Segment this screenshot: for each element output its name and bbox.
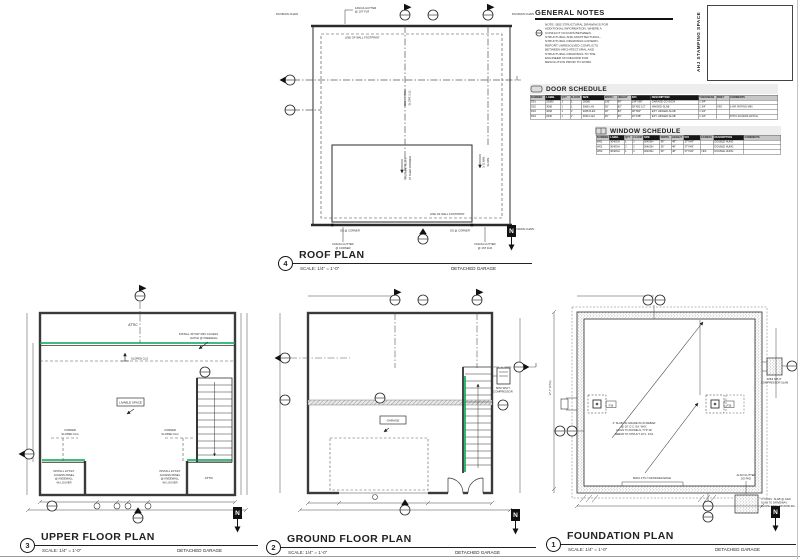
- overhead-door-track: [330, 438, 428, 490]
- building-label: DETACHED GARAGE: [451, 266, 496, 271]
- fascia-gutter-label: FASCIA GUTTER: [355, 6, 376, 10]
- title-underline: [561, 544, 796, 546]
- door-schedule-table: NUMBERLABELQTYFLOORSIZEWIDTHHEIGHTR/ODES…: [530, 95, 778, 119]
- plan-title: UPPER FLOOR PLAN: [41, 531, 155, 543]
- title-underline: [293, 263, 532, 265]
- mini-split-label: MINI SPLIT: [496, 386, 510, 390]
- mini-split-pad-label: MINI SPLIT: [768, 377, 782, 381]
- foundation-plan-drawing: 4" SLAB ON GRADE W/ #4 REBAR @ 16" O.C. …: [548, 288, 800, 530]
- garage-door-opening: [339, 478, 483, 493]
- plan-number-bubble: 4: [278, 256, 293, 271]
- foundation-hatch-ticks: [580, 495, 716, 502]
- attic-label: ATTIC: [205, 476, 214, 480]
- plan-number: 3: [25, 541, 29, 550]
- title-underline: [281, 547, 536, 549]
- access-panel-note: INSTALL 24"X24": [159, 469, 180, 473]
- ftg-edge-label: BLDG FTG THICKENED EDGE: [633, 476, 671, 480]
- sloped-clg-arrow: [121, 353, 129, 361]
- access-panel-note: @ KNEEWALL: [161, 477, 180, 481]
- fascia-gutter-label: @ 1ST FLR: [355, 10, 369, 14]
- roof-outline: [311, 26, 512, 225]
- pad-note: 4" CONC. SLAB @ GAR.: [761, 497, 792, 501]
- slope-note-center: AT SHED DORMER: [408, 156, 412, 180]
- livable-space-label: LIVABLE SPACE: [119, 401, 142, 405]
- sheet-edge-bottom: [0, 556, 800, 557]
- north-label: N: [511, 509, 520, 521]
- corner-sloped-label: SLOPED CLG: [161, 432, 178, 436]
- mini-split-pad: [762, 358, 787, 375]
- window-tags: [94, 503, 151, 509]
- north-arrow-shaft: [771, 518, 780, 532]
- plan-scale: SCALE: 1/4" = 1'-0": [568, 547, 607, 552]
- matchline-tick: [517, 76, 521, 80]
- north-n: N: [513, 512, 518, 519]
- plan-number-bubble: 3: [20, 538, 35, 553]
- slab-note: REBAR TO STRUCT. DTL. 1/S1: [615, 432, 654, 436]
- mini-split-unit: [492, 368, 510, 384]
- north-n: N: [773, 509, 778, 516]
- pad-note: SLAB TO DRIVEWAY,: [761, 501, 788, 505]
- left-dimension-text: 17'-7" (FTG): [548, 381, 552, 396]
- hatch-note: HATCH @ KNEEWALL: [190, 336, 218, 340]
- livable-arrow: [127, 409, 134, 414]
- north-arrow: N: [771, 506, 782, 533]
- upper-section-markers: [19, 285, 211, 523]
- ds-corner-label: DS @ CORNER: [450, 229, 470, 233]
- ground-floor-plan-drawing: GARAGE MINI SPLIT COMPRESSOR: [270, 288, 544, 530]
- north-label: N: [771, 506, 780, 518]
- ds-drain-chain-label: DS DRAIN CHAIN: [512, 12, 534, 16]
- pier-tag: F36: [727, 404, 732, 408]
- stamp-space-box: [707, 5, 793, 81]
- north-arrow-shaft: [233, 519, 242, 533]
- title-underline: [35, 545, 258, 547]
- slope-note-right: 3:12 MIN.: [482, 156, 486, 168]
- door-schedule-icon: [530, 85, 543, 93]
- downspout-right: [471, 224, 474, 227]
- north-n: N: [509, 228, 514, 235]
- slab-note: ALIGN TO DOWELS, TYP. W/: [616, 428, 652, 432]
- north-label: N: [507, 225, 516, 237]
- plan-scale: SCALE: 1/4" = 1'-0": [300, 266, 339, 271]
- pier-tag: F36: [609, 404, 614, 408]
- window-schedule-title: WINDOW SCHEDULE: [610, 128, 681, 135]
- plan-number-bubble: 1: [546, 537, 561, 552]
- building-label: DETACHED GARAGE: [177, 548, 222, 553]
- mini-split-pad-label: COMPRESSOR SLAB: [761, 381, 788, 385]
- plan-title: ROOF PLAN: [299, 249, 364, 261]
- north-n: N: [235, 510, 240, 517]
- roof-section-markers: [280, 4, 495, 244]
- access-panel-note: ACCESS PANEL: [54, 473, 75, 477]
- upper-stairs: [197, 378, 232, 462]
- foundation-plan-title-block: 1 FOUNDATION PLAN SCALE: 1/4" = 1'-0" DE…: [546, 530, 796, 558]
- plan-number: 4: [283, 259, 287, 268]
- slab-note: @ 16" O.C. EA. WAY,: [621, 425, 647, 429]
- driveway-pad: [735, 495, 758, 513]
- access-panel-note: W/ LOUVER: [162, 480, 177, 484]
- window-schedule-table: NUMBERLABELQTYFLOORSIZEWIDTHHEIGHTR/OEGR…: [596, 135, 781, 155]
- upper-floor-plan-drawing: ATTIC INSTALL 30"X30" MIN. ACCESS HATCH …: [18, 288, 265, 522]
- mini-split-label: COMPRESSOR: [493, 390, 512, 394]
- hatch-note: INSTALL 30"X30" MIN. ACCESS: [179, 332, 218, 336]
- plan-number-bubble: 2: [266, 540, 281, 555]
- plan-scale: SCALE: 1/4" = 1'-0": [42, 548, 81, 553]
- ds-corner-label: DS @ CORNER: [340, 229, 360, 233]
- wall-footprint-label: LINE OF WALL FOOTPRINT: [430, 212, 465, 216]
- north-label: N: [233, 507, 242, 519]
- gutter-pad-label: DS PAD: [741, 477, 751, 481]
- slab-note: 4" SLAB ON GRADE W/ #4 REBAR: [613, 421, 656, 425]
- building-label: DETACHED GARAGE: [455, 550, 500, 555]
- north-arrow-shaft: [511, 521, 520, 535]
- window-schedule: NUMBERLABELQTYFLOORSIZEWIDTHHEIGHTR/OEGR…: [596, 135, 781, 174]
- door-schedule-title: DOOR SCHEDULE: [546, 86, 607, 93]
- drawing-sheet: DS DRAIN CHAIN DS DRAIN CHAIN DS DRAIN C…: [0, 0, 800, 559]
- fascia-top-leader: [345, 10, 353, 24]
- corner-sloped-label: CORNER: [64, 428, 76, 432]
- garage-label: GARAGE: [387, 419, 400, 423]
- plan-number: 2: [271, 543, 275, 552]
- attic-label: ATTIC: [128, 323, 138, 327]
- ground-section-lines: [290, 313, 536, 368]
- ground-stairs: [463, 367, 492, 473]
- plan-number: 1: [551, 540, 555, 549]
- north-arrow: N: [233, 507, 244, 534]
- plan-title: FOUNDATION PLAN: [567, 530, 674, 542]
- fascia-bottom-label: FASCIA GUTTER: [474, 242, 495, 246]
- corner-sloped-label: CORNER: [164, 428, 176, 432]
- gutter-pad-label: ALSO GUTTER: [737, 473, 756, 477]
- window-schedule-icon: [595, 127, 607, 135]
- roof-plan-title-block: 4 ROOF PLAN SCALE: 1/4" = 1'-0" DETACHED…: [278, 249, 532, 277]
- north-arrow-shaft: [507, 237, 516, 251]
- slope-note-right: SLOPE: [486, 157, 490, 166]
- slope-note-center: 3:12 MIN. SLOPE: [404, 157, 408, 179]
- ridge-note: ROOF PITCH: [403, 90, 407, 107]
- corner-sloped-label: SLOPED CLG: [61, 432, 78, 436]
- ds-drain-chain-label: DS DRAIN CHAIN: [276, 12, 298, 16]
- upper-plan-title-block: 3 UPPER FLOOR PLAN SCALE: 1/4" = 1'-0" D…: [20, 531, 258, 559]
- roof-plan-drawing: DS DRAIN CHAIN DS DRAIN CHAIN DS DRAIN C…: [275, 2, 535, 252]
- north-arrow: N: [511, 509, 522, 536]
- general-note-text: NOTE: SEE STRUCTURAL DRAWINGS FOR ADDITI…: [545, 23, 609, 65]
- fascia-corner-label: FASCIA GUTTER: [332, 242, 353, 246]
- access-panel-note: INSTALL 24"X24": [53, 469, 74, 473]
- door-schedule-header: DOOR SCHEDULE: [530, 84, 778, 94]
- stamp-space-label: AHJ STAMPING SPACE: [696, 5, 705, 79]
- garage-arrow: [384, 428, 389, 432]
- building-label: DETACHED GARAGE: [715, 547, 760, 552]
- plan-title: GROUND FLOOR PLAN: [287, 533, 412, 545]
- plan-scale: SCALE: 1/4" = 1'-0": [288, 550, 327, 555]
- access-panel-note: @ KNEEWALL: [55, 477, 74, 481]
- sheet-edge-right: [797, 0, 798, 559]
- sloped-clg-label: SLOPED CLG: [131, 357, 148, 361]
- access-panel-note: ACCESS PANEL: [160, 473, 181, 477]
- north-arrow: N: [507, 225, 518, 252]
- general-notes-title: GENERAL NOTES: [535, 8, 673, 20]
- downspout-left: [331, 224, 334, 227]
- door-tag: [373, 495, 378, 500]
- access-panel-note: W/ LOUVER: [56, 480, 71, 484]
- ridge-note: SLOPE 3:12: [408, 90, 412, 105]
- wall-footprint-label: LINE OF WALL FOOTPRINT: [345, 36, 380, 40]
